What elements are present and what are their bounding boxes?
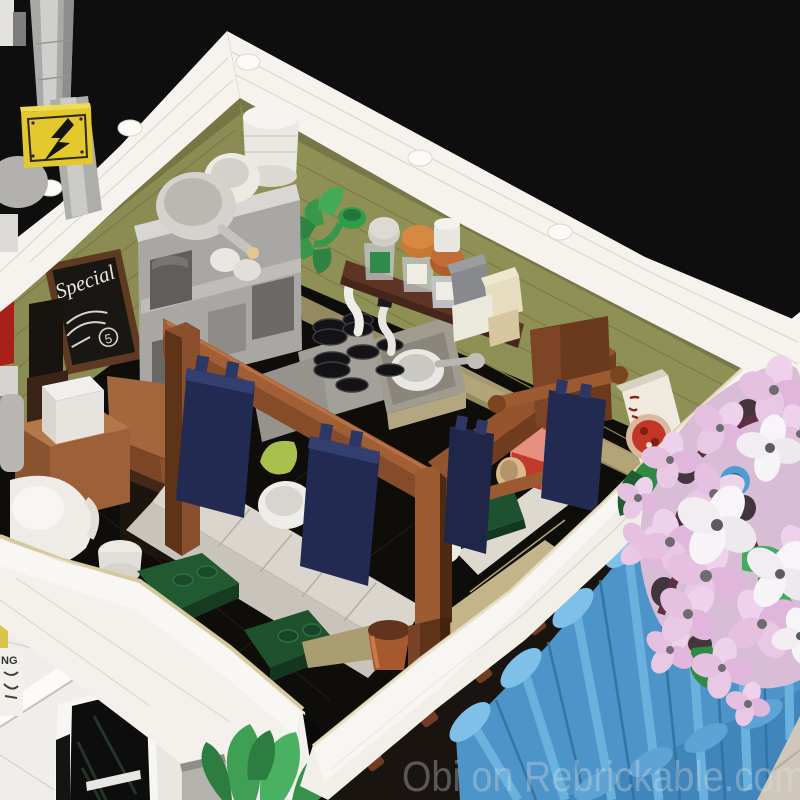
svg-text:Obi on Rebrickable.com: Obi on Rebrickable.com: [402, 752, 800, 800]
svg-text:NG: NG: [1, 655, 18, 667]
